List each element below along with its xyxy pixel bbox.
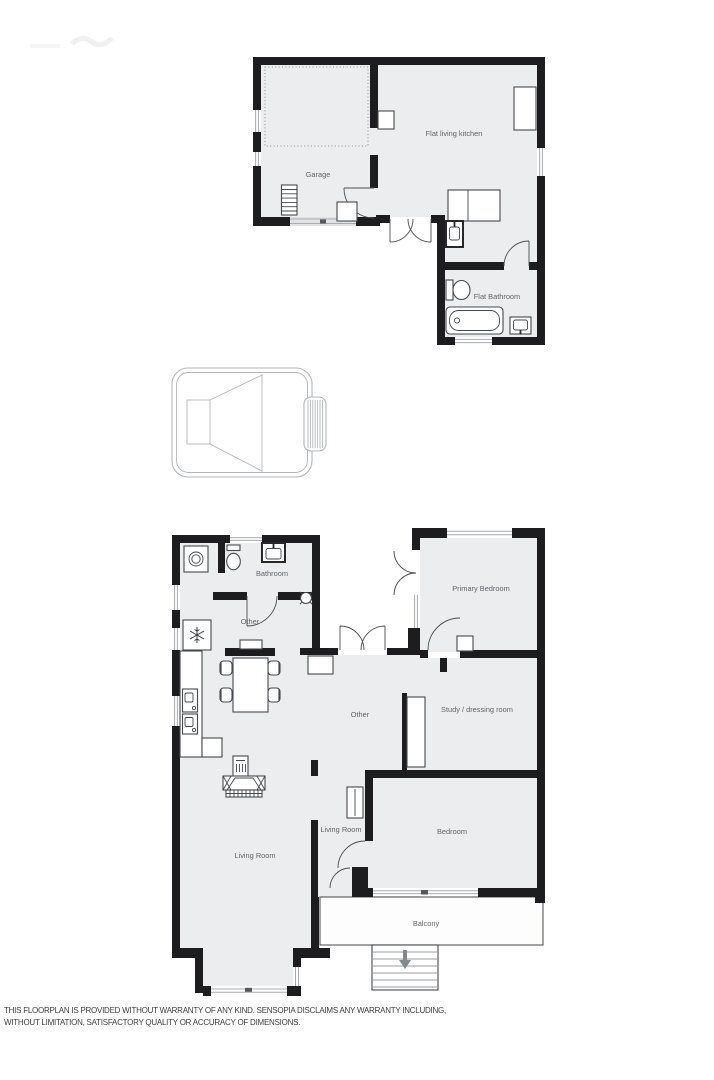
- window-icon: [211, 986, 287, 995]
- porch-cabinet: [308, 656, 333, 674]
- chair-icon: [220, 661, 232, 675]
- room-label-primary-bedroom: Primary Bedroom: [452, 584, 510, 593]
- hot-tub-icon: [172, 368, 326, 477]
- toilet-icon: [227, 545, 241, 570]
- fridge-icon: [183, 620, 211, 650]
- kitchen-cabinet-icon: [448, 190, 500, 221]
- window-icon: [230, 535, 262, 543]
- bathroom-sink-icon: [510, 317, 531, 335]
- corridor-sink-icon: [446, 221, 463, 247]
- room-label-flat-bathroom: Flat Bathroom: [474, 292, 520, 301]
- primary-bedroom-french-doors-arc: [394, 551, 416, 595]
- chair-icon: [220, 688, 232, 702]
- hob-icon: [183, 689, 198, 712]
- divider-cabinet: [378, 111, 394, 129]
- window-icon: [537, 148, 545, 176]
- disclaimer-line-2: WITHOUT LIMITATION, SATISFACTORY QUALITY…: [4, 1018, 300, 1027]
- room-label-living-room: Living Room: [234, 851, 275, 860]
- room-label-flat-living-kitchen: Flat living kitchen: [426, 129, 483, 138]
- sink-icon: [183, 714, 198, 734]
- main-floorplan: Bathroom Other Primary Bedroom Study / d…: [172, 528, 545, 996]
- stairs-icon: [372, 945, 438, 990]
- washing-machine-icon: [184, 546, 208, 572]
- room-label-bedroom: Bedroom: [437, 827, 467, 836]
- toilet-icon: [446, 280, 470, 300]
- fireplace-icon: [223, 776, 265, 797]
- chair-icon: [268, 688, 280, 702]
- window-icon: [455, 337, 492, 345]
- window-icon: [447, 528, 512, 538]
- hot-tub-ladder-icon: [304, 397, 326, 451]
- disclaimer-line-1: THIS FLOORPLAN IS PROVIDED WITHOUT WARRA…: [4, 1006, 446, 1015]
- window-icon: [373, 888, 478, 896]
- watermark: [30, 38, 112, 46]
- room-label-bathroom: Bathroom: [256, 569, 288, 578]
- room-label-other-hall: Other: [351, 710, 370, 719]
- window-icon: [253, 110, 261, 132]
- radiator-icon: [233, 756, 248, 777]
- bathtub-icon: [446, 307, 503, 334]
- floorplan-page: Garage Flat living kitchen Flat Bathroom: [0, 0, 714, 1080]
- window-icon: [412, 595, 420, 628]
- chair-icon: [268, 661, 280, 675]
- disclaimer: THIS FLOORPLAN IS PROVIDED WITHOUT WARRA…: [4, 1006, 446, 1027]
- primary-bedroom-wardrobe: [457, 636, 473, 651]
- window-icon: [293, 967, 301, 986]
- nook-radiator: [347, 787, 363, 818]
- window-icon: [172, 696, 180, 726]
- window-icon: [172, 628, 180, 650]
- wall-sink-icon: [262, 543, 285, 562]
- room-label-balcony: Balcony: [413, 919, 440, 928]
- garage-cupboard: [337, 202, 357, 221]
- ceiling-light-icon: [300, 592, 312, 604]
- study-wardrobe: [407, 697, 425, 767]
- floorplan-canvas: Garage Flat living kitchen Flat Bathroom: [0, 0, 714, 1080]
- stairs-icon: [282, 185, 298, 215]
- flat-floorplan: Garage Flat living kitchen Flat Bathroom: [253, 57, 545, 345]
- kitchen-closet-icon: [514, 87, 536, 130]
- french-doors-arc: [390, 219, 431, 242]
- room-label-study: Study / dressing room: [441, 705, 513, 714]
- window-icon: [172, 585, 180, 610]
- room-label-other-top: Other: [241, 617, 260, 626]
- room-label-garage: Garage: [306, 170, 331, 179]
- room-label-living-room-nook: Living Room: [320, 825, 361, 834]
- sideboard: [240, 640, 262, 649]
- entrance-double-door-arc: [340, 626, 385, 650]
- window-icon: [253, 152, 261, 166]
